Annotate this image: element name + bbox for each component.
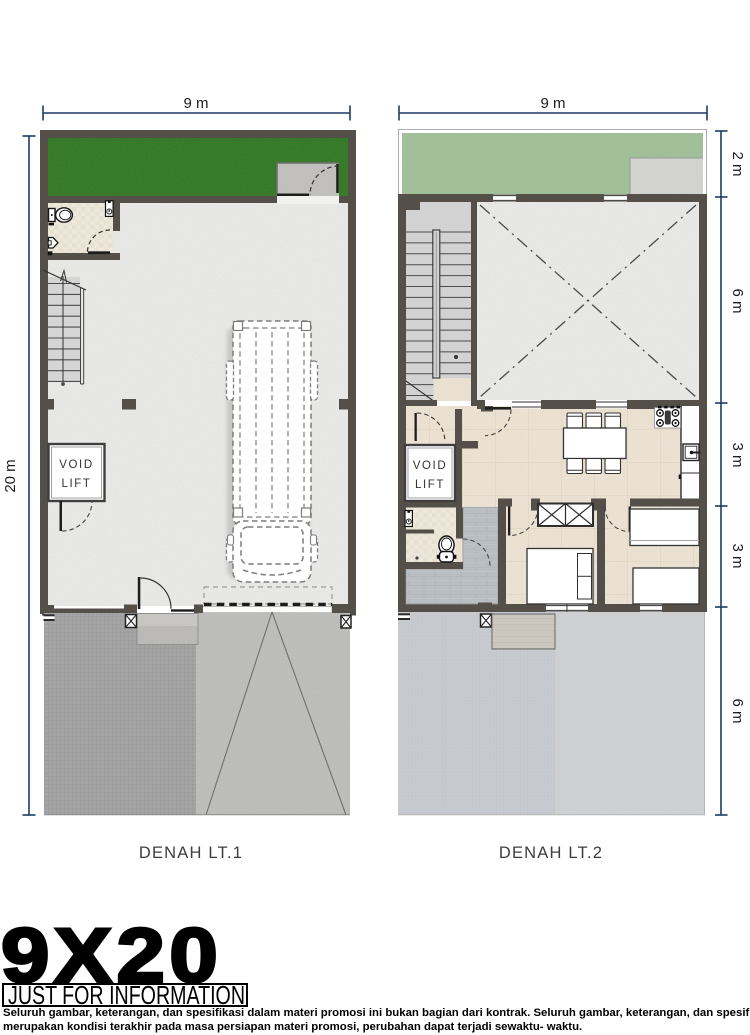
svg-text:LIFT: LIFT	[61, 478, 91, 490]
svg-text:6 m: 6 m	[729, 698, 746, 723]
svg-text:VOID: VOID	[413, 460, 448, 472]
svg-text:2 m: 2 m	[729, 151, 746, 176]
svg-text:20 m: 20 m	[2, 459, 19, 492]
svg-text:9 m: 9 m	[183, 95, 208, 112]
svg-text:VOID: VOID	[59, 459, 94, 471]
svg-text:DENAH LT.1: DENAH LT.1	[139, 844, 243, 862]
svg-text:6 m: 6 m	[729, 288, 746, 313]
svg-text:3 m: 3 m	[729, 543, 746, 568]
svg-text:3 m: 3 m	[729, 442, 746, 467]
svg-text:9 m: 9 m	[540, 95, 565, 112]
svg-text:DENAH LT.2: DENAH LT.2	[499, 844, 603, 862]
svg-text:LIFT: LIFT	[415, 479, 445, 491]
